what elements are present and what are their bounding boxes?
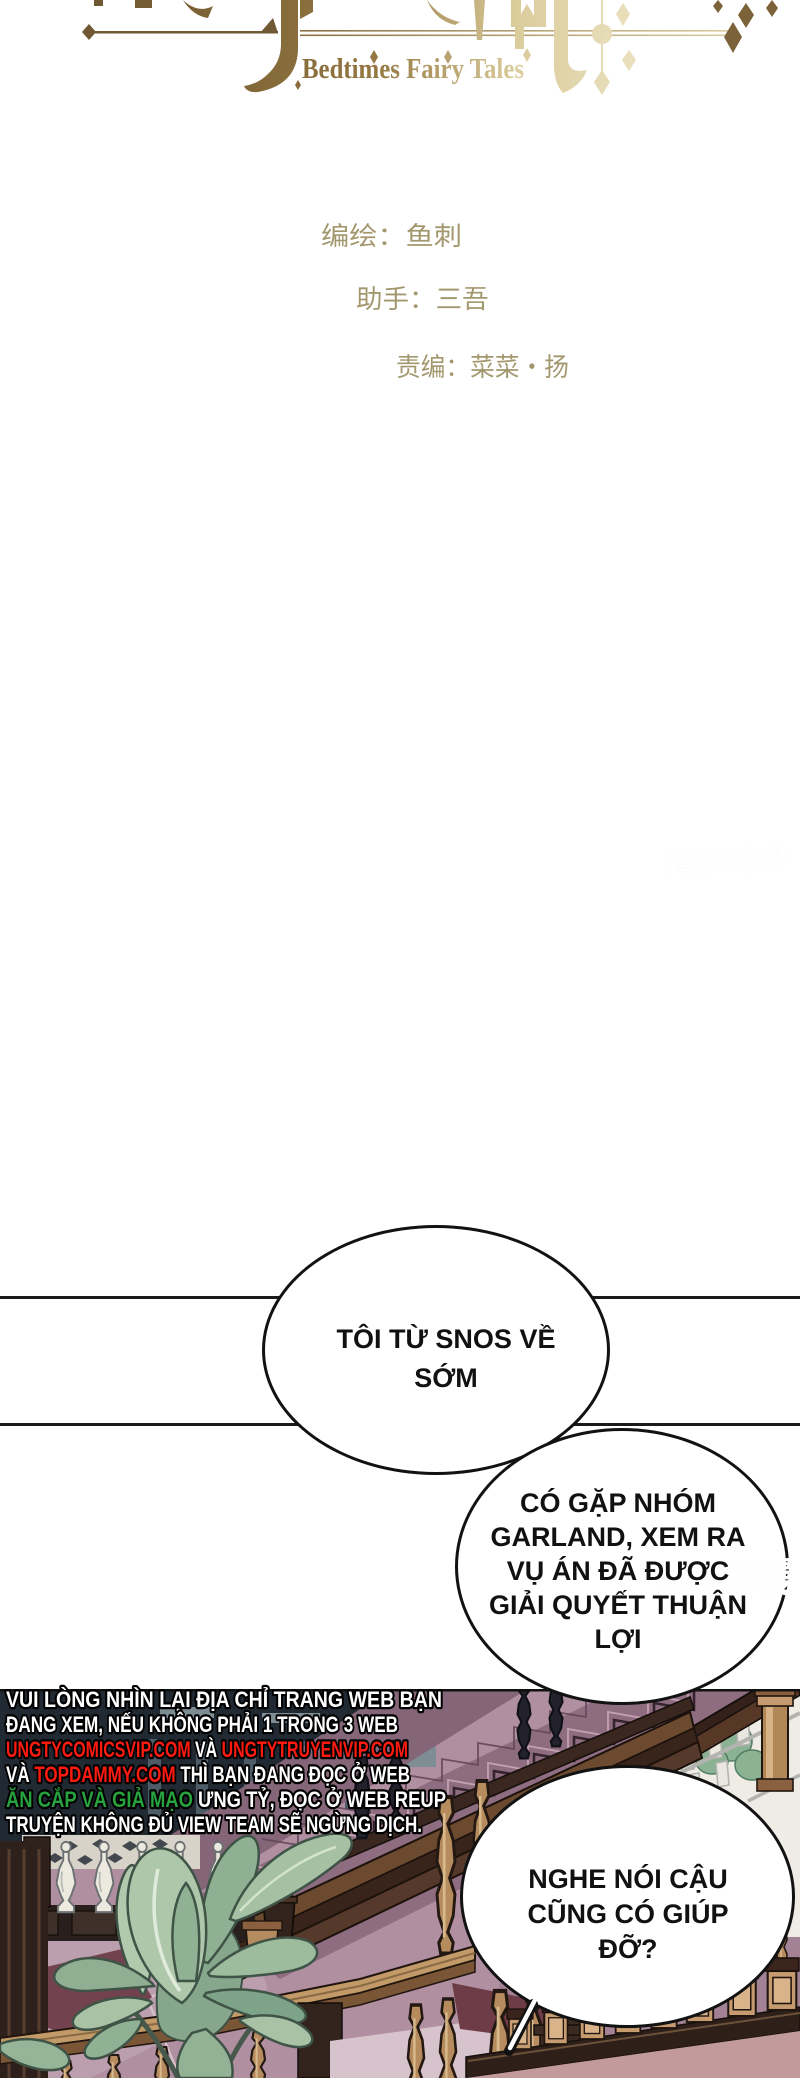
svg-text:ĐANG XEM, NẾU KHÔNG PHẢI 1 TRO: ĐANG XEM, NẾU KHÔNG PHẢI 1 TRONG 3 WEB — [6, 1712, 398, 1737]
svg-text:TRUYỆN KHÔNG ĐỦ VIEW TEAM SẼ N: TRUYỆN KHÔNG ĐỦ VIEW TEAM SẼ NGỪNG DỊCH. — [6, 1812, 422, 1837]
svg-text:VÀ TOPDAMMY.COM THÌ BẠN ĐANG Đ: VÀ TOPDAMMY.COM THÌ BẠN ĐANG ĐỌC Ở WEB — [6, 1762, 410, 1787]
svg-text:ĂN CẮP VÀ GIẢ MẠO ƯNG TỶ, ĐỌC: ĂN CẮP VÀ GIẢ MẠO ƯNG TỶ, ĐỌC Ở WEB REUP — [6, 1787, 446, 1812]
svg-text:VUI LÒNG NHÌN LẠI ĐỊA CHỈ TRAN: VUI LÒNG NHÌN LẠI ĐỊA CHỈ TRANG WEB BẠN — [6, 1687, 442, 1712]
svg-text:Bedtimes Fairy Tales: Bedtimes Fairy Tales — [302, 54, 524, 85]
svg-text:UNGTYCOMICSVIP.COM VÀ UNGTYTRU: UNGTYCOMICSVIP.COM VÀ UNGTYTRUYENVIP.COM — [6, 1737, 408, 1762]
